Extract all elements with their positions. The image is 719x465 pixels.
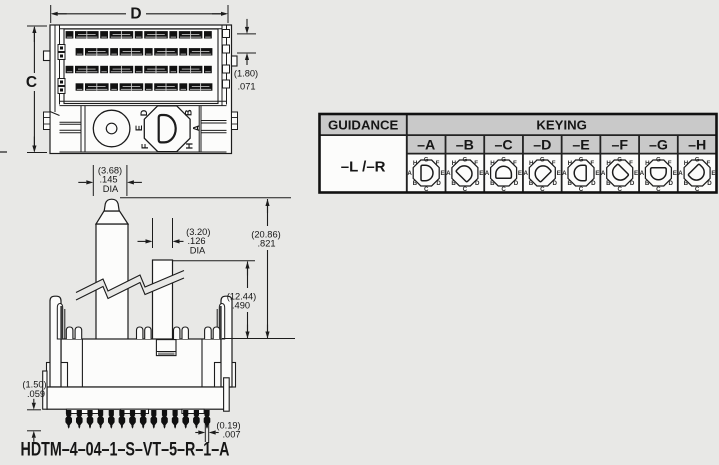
svg-text:D: D xyxy=(436,180,441,187)
svg-text:GUIDANCE: GUIDANCE xyxy=(328,117,399,132)
svg-text:C: C xyxy=(579,186,584,193)
svg-text:–F: –F xyxy=(611,137,628,153)
svg-text:B: B xyxy=(684,180,689,187)
svg-text:D: D xyxy=(475,180,480,187)
svg-text:D: D xyxy=(552,180,557,187)
svg-text:G: G xyxy=(424,157,429,164)
svg-text:–G: –G xyxy=(649,137,668,153)
svg-text:G: G xyxy=(617,157,622,164)
svg-text:H: H xyxy=(606,160,611,167)
svg-text:B: B xyxy=(645,180,650,187)
svg-text:A: A xyxy=(407,170,412,177)
svg-text:(1.80): (1.80) xyxy=(234,69,258,79)
svg-text:–A: –A xyxy=(417,137,435,153)
svg-text:E: E xyxy=(595,170,599,177)
svg-text:C: C xyxy=(695,186,700,193)
svg-text:.821: .821 xyxy=(257,238,275,248)
svg-text:F: F xyxy=(513,160,517,167)
svg-text:F: F xyxy=(668,160,672,167)
svg-text:A: A xyxy=(446,170,451,177)
svg-text:D: D xyxy=(139,109,149,116)
svg-text:.059: .059 xyxy=(27,389,45,399)
svg-text:HDTM–4–04–1–S–VT–5–R–1–A: HDTM–4–04–1–S–VT–5–R–1–A xyxy=(21,440,230,461)
svg-text:H: H xyxy=(184,143,194,150)
svg-text:.126: .126 xyxy=(187,236,205,246)
svg-text:G: G xyxy=(695,157,700,164)
svg-text:A: A xyxy=(562,170,567,177)
svg-text:D: D xyxy=(591,180,596,187)
svg-text:–C: –C xyxy=(495,137,513,153)
svg-text:A: A xyxy=(601,170,606,177)
svg-text:H: H xyxy=(684,160,689,167)
svg-text:.145: .145 xyxy=(99,175,117,185)
svg-text:G: G xyxy=(501,157,506,164)
svg-text:D: D xyxy=(669,180,674,187)
svg-text:.490: .490 xyxy=(232,300,250,310)
svg-text:B: B xyxy=(529,180,534,187)
svg-text:E: E xyxy=(134,125,144,131)
svg-text:A: A xyxy=(191,124,201,131)
svg-text:G: G xyxy=(656,157,661,164)
svg-text:C: C xyxy=(617,186,622,193)
svg-text:D: D xyxy=(630,180,635,187)
svg-text:B: B xyxy=(606,180,611,187)
svg-text:–E: –E xyxy=(572,137,589,153)
svg-text:B: B xyxy=(184,109,194,116)
svg-text:B: B xyxy=(451,180,456,187)
svg-text:C: C xyxy=(540,186,545,193)
svg-text:F: F xyxy=(436,160,440,167)
svg-text:D: D xyxy=(707,180,712,187)
svg-text:C: C xyxy=(501,186,506,193)
svg-text:D: D xyxy=(130,6,141,23)
svg-text:C: C xyxy=(424,186,429,193)
svg-text:E: E xyxy=(673,170,677,177)
svg-text:C: C xyxy=(463,186,468,193)
svg-text:H: H xyxy=(529,160,534,167)
svg-text:F: F xyxy=(552,160,556,167)
svg-text:E: E xyxy=(557,170,561,177)
svg-text:F: F xyxy=(474,160,478,167)
svg-text:F: F xyxy=(140,143,150,149)
svg-text:B: B xyxy=(413,180,418,187)
svg-text:E: E xyxy=(518,170,522,177)
svg-text:A: A xyxy=(523,170,528,177)
svg-text:C: C xyxy=(26,74,37,91)
svg-text:H: H xyxy=(490,160,495,167)
svg-text:H: H xyxy=(568,160,573,167)
svg-text:DIA: DIA xyxy=(103,184,119,194)
svg-text:B: B xyxy=(490,180,495,187)
svg-text:–D: –D xyxy=(533,137,551,153)
svg-text:A: A xyxy=(640,170,645,177)
svg-text:A: A xyxy=(485,170,490,177)
svg-text:F: F xyxy=(629,160,633,167)
svg-text:–L /–R: –L /–R xyxy=(341,159,386,176)
svg-text:C: C xyxy=(656,186,661,193)
svg-text:H: H xyxy=(413,160,418,167)
svg-text:E: E xyxy=(441,170,445,177)
svg-text:KEYING: KEYING xyxy=(536,117,587,132)
svg-text:E: E xyxy=(479,170,483,177)
svg-text:G: G xyxy=(579,157,584,164)
svg-text:F: F xyxy=(590,160,594,167)
svg-text:–H: –H xyxy=(688,137,706,153)
svg-text:B: B xyxy=(567,180,572,187)
svg-text:.071: .071 xyxy=(237,82,255,92)
svg-text:DIA: DIA xyxy=(190,245,206,255)
svg-text:D: D xyxy=(514,180,519,187)
svg-text:.007: .007 xyxy=(222,430,240,440)
svg-text:G: G xyxy=(462,157,467,164)
svg-text:F: F xyxy=(707,160,711,167)
svg-text:E: E xyxy=(634,170,638,177)
svg-text:H: H xyxy=(645,160,650,167)
svg-text:E: E xyxy=(711,170,715,177)
svg-text:–B: –B xyxy=(456,137,474,153)
svg-text:A: A xyxy=(678,170,683,177)
svg-text:H: H xyxy=(452,160,457,167)
svg-text:G: G xyxy=(540,157,545,164)
